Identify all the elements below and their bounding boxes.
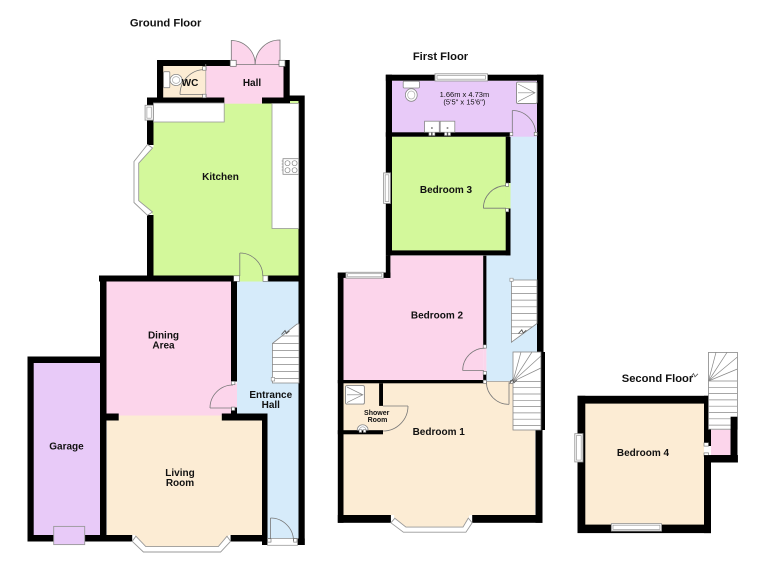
svg-text:Room: Room bbox=[368, 417, 388, 424]
svg-text:Kitchen: Kitchen bbox=[202, 172, 239, 183]
svg-text:Room: Room bbox=[166, 478, 194, 489]
svg-text:Hall: Hall bbox=[243, 78, 262, 89]
svg-text:Hall: Hall bbox=[262, 400, 281, 411]
svg-text:Bedroom 3: Bedroom 3 bbox=[420, 185, 473, 196]
svg-text:Second Floor: Second Floor bbox=[622, 373, 694, 385]
svg-text:(5'5" x 15'6"): (5'5" x 15'6") bbox=[443, 98, 485, 107]
svg-text:Bedroom 2: Bedroom 2 bbox=[411, 311, 464, 322]
svg-text:Garage: Garage bbox=[49, 442, 84, 453]
svg-text:WC: WC bbox=[182, 78, 199, 89]
svg-text:Shower: Shower bbox=[364, 410, 390, 417]
svg-text:Bedroom 1: Bedroom 1 bbox=[413, 427, 466, 438]
svg-text:Bedroom 4: Bedroom 4 bbox=[617, 448, 670, 459]
svg-text:Ground Floor: Ground Floor bbox=[130, 17, 202, 29]
svg-text:Area: Area bbox=[152, 341, 175, 352]
svg-text:First Floor: First Floor bbox=[413, 51, 469, 63]
